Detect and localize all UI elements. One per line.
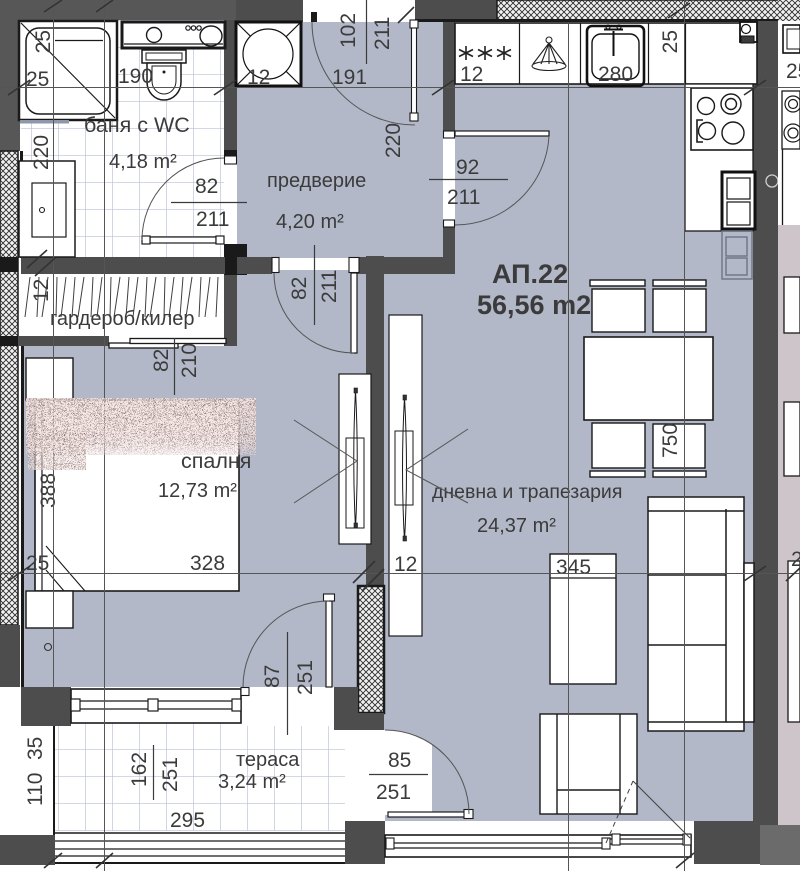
svg-text:102: 102 (337, 13, 360, 48)
svg-text:56,56 m2: 56,56 m2 (477, 290, 591, 320)
svg-text:тераса: тераса (236, 749, 300, 771)
svg-text:82: 82 (195, 175, 218, 198)
svg-text:дневна и трапезария: дневна и трапезария (432, 481, 622, 503)
svg-text:750: 750 (659, 423, 682, 458)
svg-text:191: 191 (332, 66, 367, 89)
svg-text:211: 211 (196, 208, 229, 231)
svg-text:12: 12 (30, 279, 53, 302)
svg-text:251: 251 (376, 781, 411, 804)
svg-text:220: 220 (30, 135, 53, 170)
svg-text:211: 211 (371, 17, 394, 50)
svg-text:85: 85 (388, 749, 411, 772)
svg-text:25: 25 (786, 60, 800, 83)
svg-text:82: 82 (150, 349, 173, 372)
svg-text:87: 87 (261, 665, 284, 688)
svg-text:баня с WC: баня с WC (84, 113, 190, 137)
svg-text:25: 25 (659, 30, 682, 53)
svg-text:12: 12 (247, 66, 270, 89)
svg-text:4,20 m²: 4,20 m² (276, 211, 344, 233)
svg-text:210: 210 (178, 343, 201, 378)
svg-text:2: 2 (791, 548, 800, 571)
svg-text:24,37 m²: 24,37 m² (477, 515, 556, 537)
svg-text:гардероб/килер: гардероб/килер (50, 308, 195, 330)
svg-text:110: 110 (24, 773, 47, 806)
svg-text:25: 25 (26, 552, 49, 575)
svg-text:162: 162 (128, 752, 151, 787)
svg-text:280: 280 (598, 63, 633, 86)
svg-text:388: 388 (37, 473, 60, 508)
svg-text:190: 190 (118, 65, 153, 88)
svg-text:предверие: предверие (267, 170, 366, 192)
svg-text:12,73 m²: 12,73 m² (158, 480, 237, 502)
svg-text:345: 345 (556, 556, 591, 579)
svg-text:251: 251 (294, 660, 317, 695)
svg-text:82: 82 (288, 277, 311, 300)
svg-text:12: 12 (394, 553, 417, 576)
svg-text:211: 211 (447, 186, 480, 209)
svg-text:92: 92 (456, 156, 479, 179)
svg-text:211: 211 (318, 270, 341, 303)
svg-text:АП.22: АП.22 (492, 259, 568, 289)
svg-text:220: 220 (382, 123, 405, 158)
svg-text:4,18 m²: 4,18 m² (109, 151, 177, 173)
svg-text:12: 12 (460, 63, 483, 86)
svg-text:328: 328 (190, 552, 225, 575)
svg-text:251: 251 (159, 757, 182, 792)
svg-text:3,24 m²: 3,24 m² (218, 771, 286, 793)
svg-text:35: 35 (24, 737, 47, 760)
svg-text:25: 25 (32, 30, 55, 53)
svg-text:295: 295 (170, 809, 205, 832)
